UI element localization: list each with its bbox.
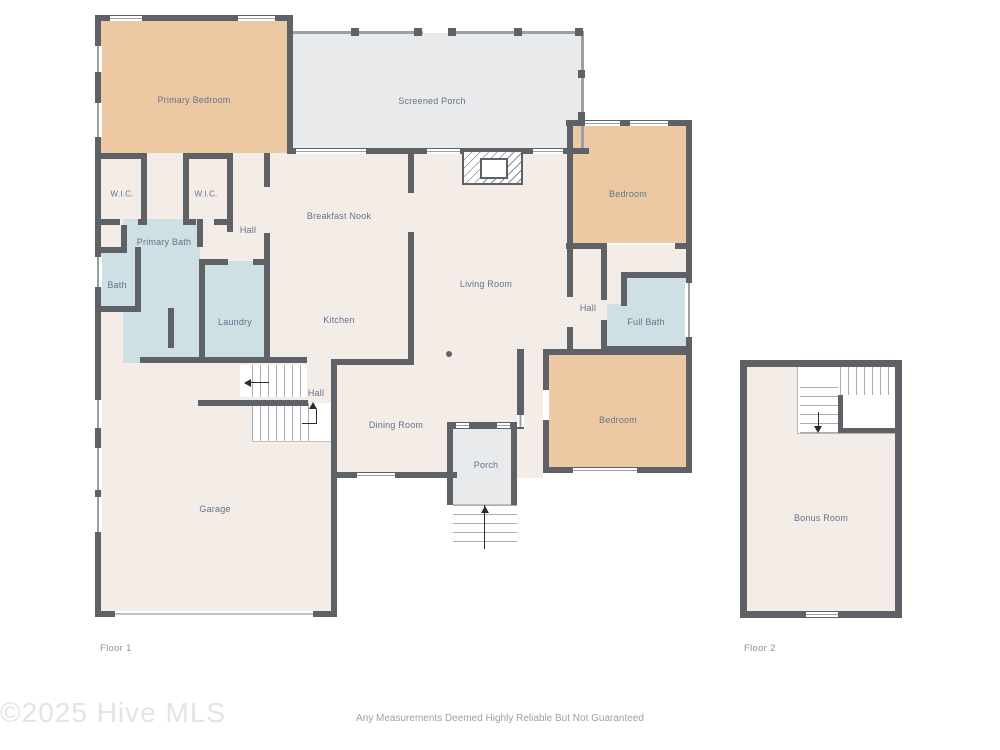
stair-edge (252, 441, 337, 442)
wall (197, 219, 203, 247)
garage-door-line (115, 613, 313, 615)
wall (511, 423, 517, 505)
window (94, 103, 102, 137)
wall (567, 327, 573, 349)
room-label-bedroom-bottom-right: Bedroom (599, 415, 637, 425)
room-label-hall-right: Hall (580, 303, 596, 313)
wall (408, 232, 414, 365)
room-label-screened-porch: Screened Porch (398, 96, 465, 106)
window (357, 473, 395, 478)
room-fill (573, 126, 686, 243)
wall (447, 423, 453, 505)
window (427, 149, 460, 154)
wall (264, 233, 270, 363)
wall (95, 247, 126, 253)
wall (138, 219, 147, 225)
wall (740, 360, 747, 618)
stair-treads (840, 367, 895, 395)
wall (337, 472, 457, 478)
wall (287, 15, 293, 154)
wall (740, 360, 902, 367)
wall (199, 259, 205, 363)
stair-arrow-icon (309, 402, 317, 409)
room-label-primary-bedroom: Primary Bedroom (157, 95, 230, 105)
floor2-caption: Floor 2 (744, 643, 776, 654)
screen-post (578, 70, 585, 78)
wall (135, 247, 141, 310)
window (94, 497, 102, 532)
room-label-bath: Bath (107, 280, 126, 290)
wall (567, 249, 573, 297)
screen-post (351, 28, 359, 36)
room-fill (205, 261, 266, 363)
window (296, 149, 366, 154)
room-label-porch: Porch (474, 460, 499, 470)
window (94, 46, 102, 72)
room-label-breakfast-nook: Breakfast Nook (307, 211, 371, 221)
window (806, 612, 838, 617)
window (94, 400, 102, 428)
wall (601, 320, 607, 349)
screen-rail (581, 31, 584, 150)
stair-arrow-line (251, 382, 269, 383)
measurement-disclaimer: Any Measurements Deemed Highly Reliable … (250, 713, 750, 724)
window (110, 16, 142, 21)
window (456, 423, 469, 428)
wall (141, 153, 147, 225)
window (94, 257, 102, 287)
window (238, 16, 275, 21)
room-label-wic-left: W.I.C. (111, 190, 134, 199)
window (685, 283, 693, 337)
mls-watermark: ©2025 Hive MLS (0, 697, 226, 729)
room-label-bonus-room: Bonus Room (794, 513, 848, 523)
wall (198, 400, 308, 406)
stair-arrow-line (818, 412, 819, 426)
wall (183, 153, 233, 159)
floor-plan: Primary Bedroom Screened Porch W.I.C. W.… (0, 0, 1000, 750)
wall (95, 306, 141, 312)
wall (199, 259, 228, 265)
room-label-hall-upper: Hall (240, 225, 256, 235)
window (573, 468, 637, 473)
room-fill (293, 33, 583, 148)
room-fill (101, 153, 233, 219)
stair-arrow-line (302, 423, 317, 424)
screen-post (578, 112, 585, 120)
floor1-caption: Floor 1 (100, 643, 132, 654)
stair-edge (453, 504, 517, 505)
wall (601, 249, 607, 300)
room-label-primary-bath: Primary Bath (137, 237, 191, 247)
stair-arrow-icon (481, 506, 489, 513)
wall (183, 219, 196, 225)
plan-point-marker (446, 351, 452, 357)
stair-treads (252, 365, 307, 397)
room-label-living-room: Living Room (460, 279, 512, 289)
room-label-full-bath: Full Bath (627, 317, 664, 327)
screen-post (514, 28, 522, 36)
room-label-laundry: Laundry (218, 317, 252, 327)
stair-treads (252, 403, 314, 441)
window (630, 121, 668, 126)
stair-arrow-line (316, 409, 317, 423)
window (517, 415, 524, 427)
wall (168, 308, 174, 348)
wall (408, 153, 414, 193)
room-label-kitchen: Kitchen (323, 315, 354, 325)
wall (95, 219, 120, 225)
fireplace-firebox (480, 158, 508, 179)
wall (543, 349, 549, 390)
wall (183, 153, 189, 225)
wall (895, 360, 902, 618)
wall (264, 153, 270, 187)
screen-post (448, 28, 456, 36)
wall (95, 611, 115, 617)
wall (313, 611, 337, 617)
window (94, 448, 102, 490)
wall (95, 153, 147, 159)
stair-arrow-icon (814, 426, 822, 433)
room-label-garage: Garage (199, 504, 230, 514)
stair-arrow-icon (244, 379, 251, 387)
window (533, 149, 563, 154)
window (585, 121, 620, 126)
wall (214, 219, 233, 225)
room-label-bedroom-top-right: Bedroom (609, 189, 647, 199)
window (497, 423, 510, 428)
screen-post (575, 28, 583, 36)
wall (621, 272, 692, 278)
wall (843, 428, 895, 433)
screen-post (414, 28, 422, 36)
wall (601, 346, 692, 352)
wall (543, 420, 549, 473)
room-label-hall-stairs: Hall (308, 388, 324, 398)
wall (567, 120, 573, 249)
wall (621, 272, 627, 306)
room-label-dining-room: Dining Room (369, 420, 423, 430)
room-fill (101, 21, 287, 153)
room-fill (549, 355, 686, 473)
room-label-wic-right: W.I.C. (195, 190, 218, 199)
wall (675, 243, 692, 249)
wall (337, 359, 414, 365)
stair-rail (484, 505, 485, 549)
wall (331, 359, 337, 611)
wall (140, 357, 307, 363)
